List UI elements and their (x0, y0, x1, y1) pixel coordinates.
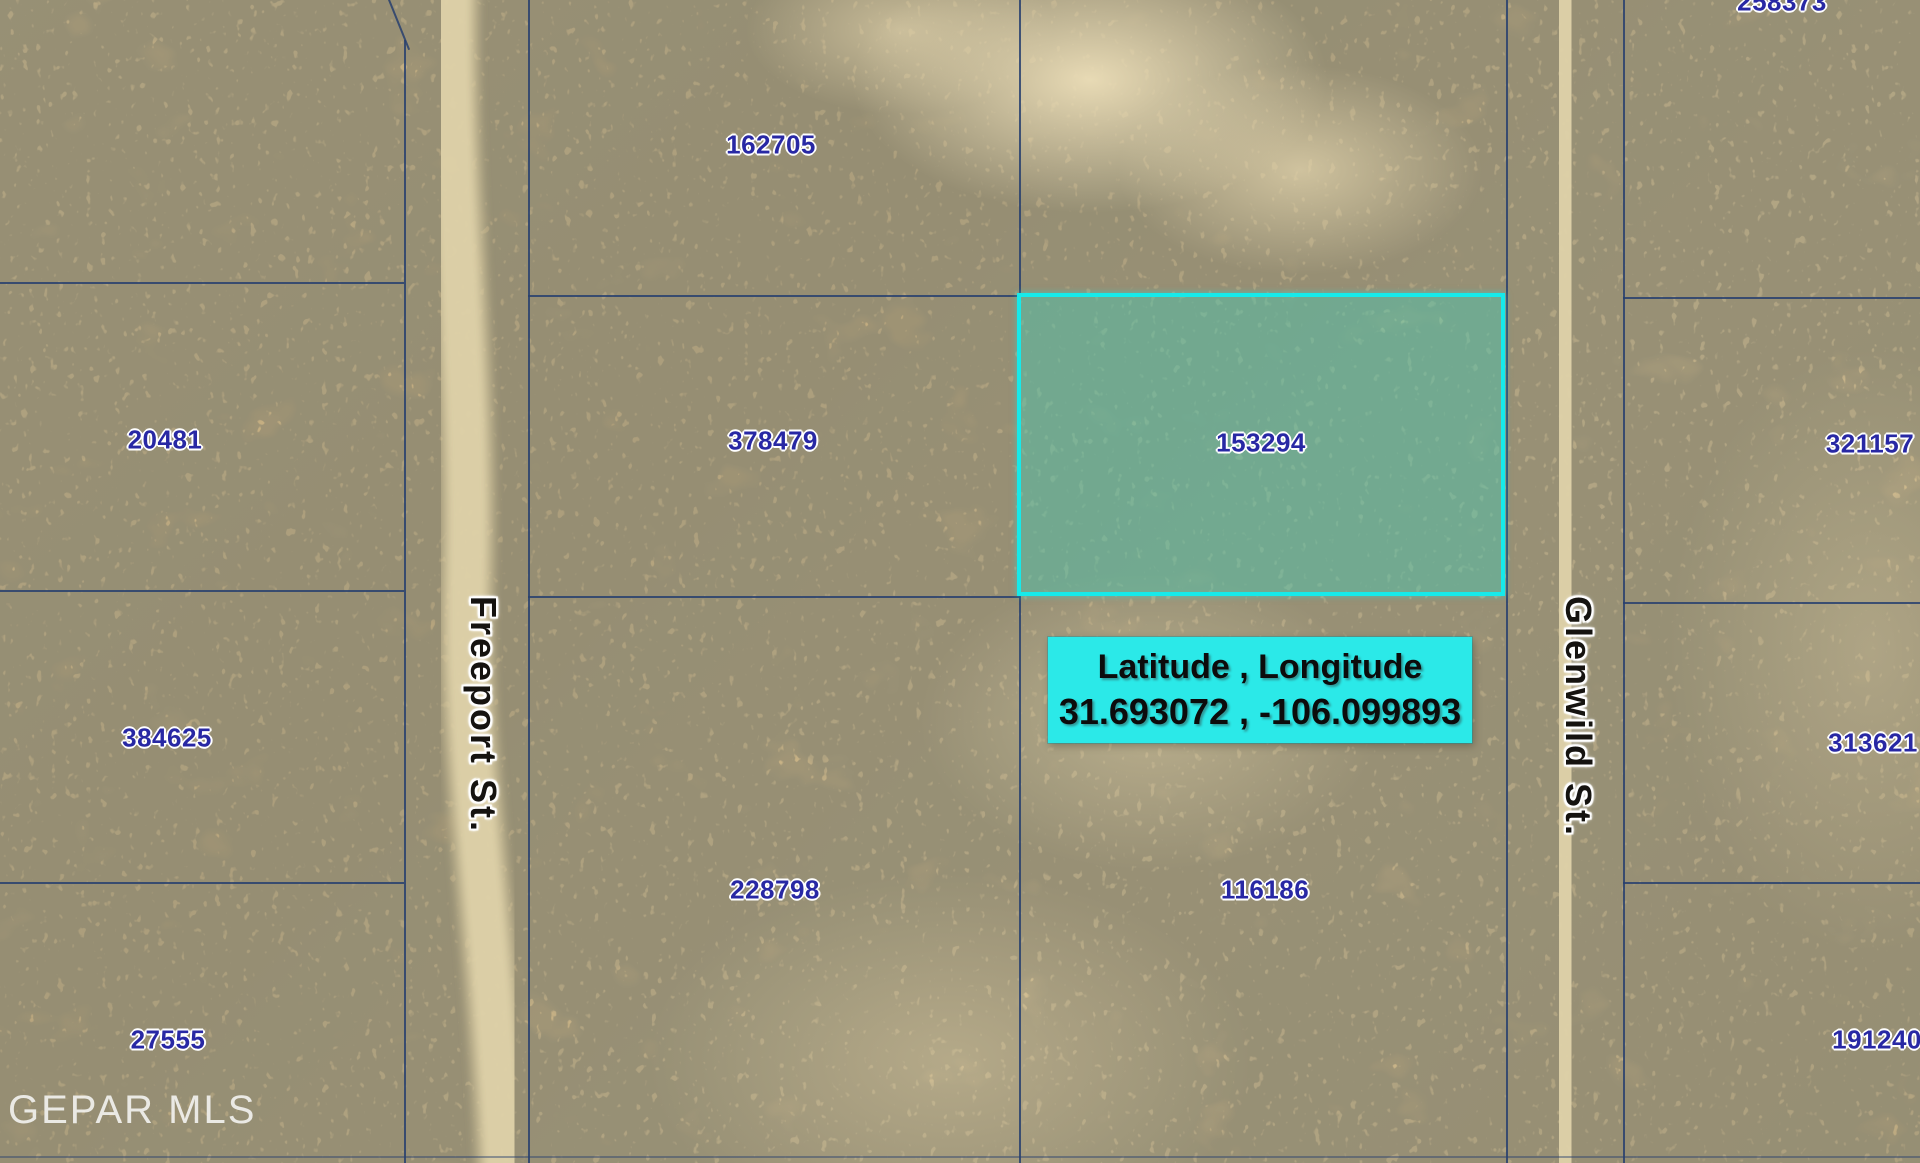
street-name-freeport-st: Freeport St. (462, 596, 504, 834)
parcel-boundary-line (0, 882, 404, 884)
parcel-number-228798: 228798 (730, 875, 820, 906)
parcel-number-153294: 153294 (1216, 428, 1306, 459)
parcel-boundary-line (528, 0, 530, 1163)
parcel-boundary-line (0, 590, 404, 592)
street-name-glenwild-st: Glenwild St. (1557, 596, 1599, 838)
parcel-number-313621: 313621 (1828, 728, 1918, 759)
coordinate-label-title: Latitude , Longitude (1098, 645, 1423, 689)
coordinate-label-box: Latitude , Longitude 31.693072 , -106.09… (1048, 637, 1472, 743)
parcel-number-27555: 27555 (131, 1025, 206, 1056)
parcel-number-321157: 321157 (1826, 429, 1914, 460)
parcel-number-116186: 116186 (1221, 875, 1309, 906)
parcel-boundary-line (1623, 882, 1920, 884)
parcel-number-258373: 258373 (1737, 0, 1827, 18)
gepar-mls-watermark: GEPAR MLS (8, 1088, 256, 1133)
parcel-boundary-line (528, 295, 1021, 297)
parcel-boundary-line (0, 1156, 1920, 1158)
parcel-boundary-line (404, 40, 406, 1163)
sand-clearings (0, 0, 1920, 1163)
parcel-boundary-line (0, 282, 404, 284)
parcel-number-191240: 191240 (1832, 1025, 1920, 1056)
satellite-parcel-map: 2583731627052048137847915329432115738462… (0, 0, 1920, 1163)
parcel-boundary-line (1623, 602, 1920, 604)
parcel-boundary-line (1506, 0, 1508, 1163)
parcel-number-378479: 378479 (728, 426, 818, 457)
parcel-number-384625: 384625 (122, 723, 212, 754)
parcel-number-20481: 20481 (128, 425, 203, 456)
coordinate-values: 31.693072 , -106.099893 (1059, 689, 1461, 735)
parcel-boundary-line (1623, 0, 1625, 1163)
parcel-boundary-line (1623, 297, 1920, 299)
parcel-boundary-line (528, 596, 1021, 598)
parcel-number-162705: 162705 (726, 130, 816, 161)
